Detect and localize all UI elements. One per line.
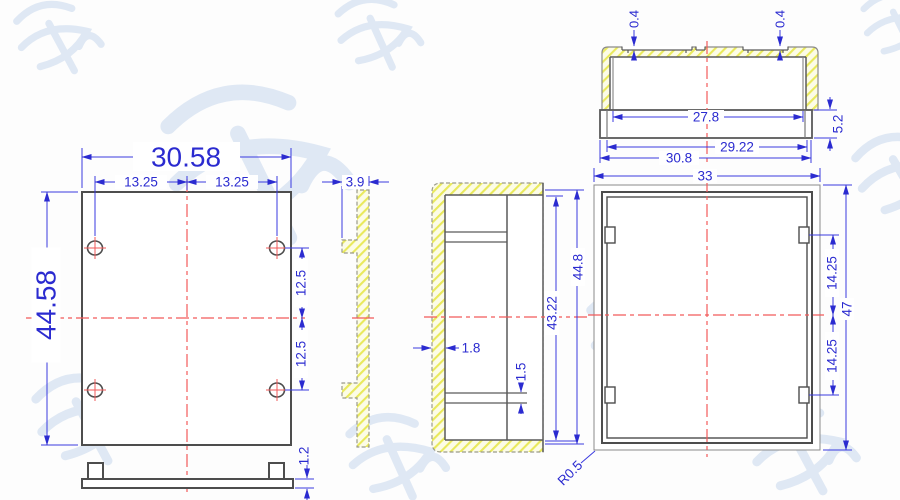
inner-depth-label: 43.22 [545,296,560,330]
slot-offset-lower-label: 14.25 [825,339,840,373]
notch-top-left [605,227,615,243]
slot-gap-label: 1.5 [514,363,529,382]
front-height-label: 44.58 [31,270,62,340]
hole-offset-upper-label: 12.5 [294,270,309,296]
flange-depth-label: 3.9 [346,175,365,190]
hole-offset-lower-label: 12.5 [294,341,309,367]
boss-left [88,463,103,479]
notch-bottom-right [799,387,809,403]
groove-depth-right-label: 0.4 [773,10,788,28]
cap-cavity [610,57,806,110]
notch-bottom-left [605,387,615,403]
slot-offset-upper-label: 14.25 [825,256,840,290]
collar-height-label: 5.2 [831,115,846,134]
notch-top-right [799,227,809,243]
base-thickness-label: 1.2 [297,447,312,466]
cap-outer-width-label: 30.8 [666,151,692,166]
cap-step-width-label: 29.22 [720,140,754,155]
end-frame-view: 33 47 14.25 14.25 R0.5 [555,168,855,488]
boss-right [269,463,284,479]
pitch-left-label: 13.25 [124,175,158,190]
groove-depth-left-label: 0.4 [627,10,642,28]
frame-width-label: 33 [697,169,712,184]
base-plate-outline [82,479,293,488]
cap-inner-width-label: 27.8 [693,110,719,125]
outer-depth-label: 44.8 [571,254,586,280]
pitch-right-label: 13.25 [215,175,249,190]
technical-drawing-canvas: 30.58 13.25 13.25 44.58 12.5 [0,0,900,500]
frame-height-label: 47 [840,301,855,316]
wall-thickness-label: 1.8 [462,341,481,356]
front-width-label: 30.58 [151,142,221,173]
